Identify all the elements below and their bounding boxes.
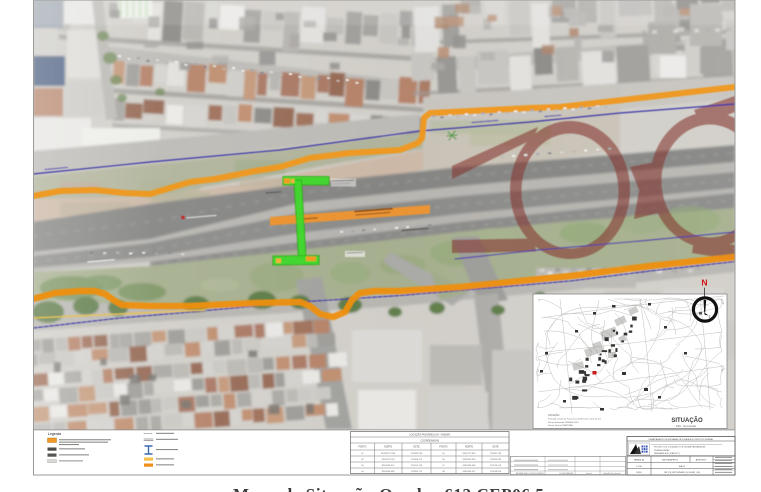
svg-text:Legenda: Legenda (48, 432, 61, 436)
svg-text:Folha A1 Sem Escala: Folha A1 Sem Escala (603, 472, 620, 475)
svg-text:N: N (701, 278, 707, 288)
svg-text:1:100: 1:100 (636, 466, 642, 468)
svg-text:Mapa de Situação-Quadra 612 CE: Mapa de Situação-Quadra 612 CEP06.5 (233, 485, 544, 492)
svg-text:COORDENADAS: COORDENADAS (420, 439, 439, 442)
svg-text:ESC.: Sem Escala: ESC.: Sem Escala (676, 425, 696, 428)
svg-text:ASSINATURA DO RESPONSÁVEL: ASSINATURA DO RESPONSÁVEL (516, 472, 544, 475)
svg-text:Datum Vertical: IMBITUBA: Datum Vertical: IMBITUBA (548, 424, 573, 427)
svg-text:175668.160: 175668.160 (411, 453, 423, 455)
svg-text:Escala: Escala (586, 473, 591, 475)
svg-text:8249287.1280: 8249287.1280 (381, 453, 396, 455)
svg-text:8249248.968: 8249248.968 (382, 471, 396, 473)
svg-text:PASSARELA W (VIADUTO): PASSARELA W (VIADUTO) (654, 452, 680, 455)
svg-text:N/FS: N/FS (637, 472, 643, 474)
svg-text:s: s (709, 315, 711, 319)
svg-text:PONTO: PONTO (358, 447, 366, 449)
svg-text:COORDENADAS: COORDENADAS (559, 472, 574, 475)
svg-text:LOCAÇÃO:: LOCAÇÃO: (548, 414, 560, 417)
svg-text:175656.229: 175656.229 (490, 459, 502, 461)
svg-text:PLANTA GERAL: PLANTA GERAL (654, 449, 670, 452)
svg-text:8249270.755: 8249270.755 (382, 459, 396, 461)
svg-text:A780/5972: A780/5972 (696, 459, 707, 462)
svg-text:Datum Horizontal: SIRGAS 2000: Datum Horizontal: SIRGAS 2000 (548, 421, 579, 424)
svg-text:MR_PE_SRTVS/N0890_N 98 HRJ_GW: MR_PE_SRTVS/N0890_N 98 HRJ_GW (664, 472, 700, 474)
svg-text:175658.211: 175658.211 (411, 459, 423, 461)
svg-text:8249343.466: 8249343.466 (463, 465, 477, 467)
svg-text:175681.139: 175681.139 (490, 453, 502, 455)
svg-text:DEPARTAMENTO DE ESTRADAS DE RO: DEPARTAMENTO DE ESTRADAS DE RODAGEM DO D… (649, 438, 714, 441)
svg-text:ESTE: ESTE (493, 447, 499, 449)
svg-text:8249334.412: 8249334.412 (463, 471, 477, 473)
svg-text:LOCAÇÃO PASSARELA W - VIADWG: LOCAÇÃO PASSARELA W - VIADWG (409, 434, 450, 437)
svg-text:SIA VIA APROG: SIA VIA APROG (662, 459, 678, 462)
svg-text:BRASÍLIA: BRASÍLIA (634, 459, 644, 462)
svg-text:PROJETO DE LOCAÇÃO E DE NOVAS: PROJETO DE LOCAÇÃO E DE NOVAS PASSARELAS (654, 446, 706, 449)
svg-text:175676.118: 175676.118 (411, 465, 423, 467)
svg-text:175678.116: 175678.116 (490, 465, 502, 467)
svg-text:8249717.845: 8249717.845 (463, 453, 477, 455)
svg-text:175664.712: 175664.712 (411, 471, 423, 473)
svg-text:Projeção: Universal Transversa: Projeção: Universal Transversa de Mercat… (548, 418, 601, 421)
svg-text:175618.014: 175618.014 (490, 471, 502, 473)
svg-text:SIA 12: SIA 12 (679, 465, 686, 468)
svg-text:ESTE: ESTE (414, 447, 420, 449)
svg-text:NORTE: NORTE (465, 447, 473, 449)
svg-text:8249268.415: 8249268.415 (382, 465, 396, 467)
svg-text:PONTO: PONTO (439, 447, 447, 449)
svg-text:SITUAÇÃO: SITUAÇÃO (671, 417, 703, 424)
svg-text:8249814.953: 8249814.953 (463, 459, 477, 461)
svg-text:NORTE: NORTE (384, 447, 392, 449)
